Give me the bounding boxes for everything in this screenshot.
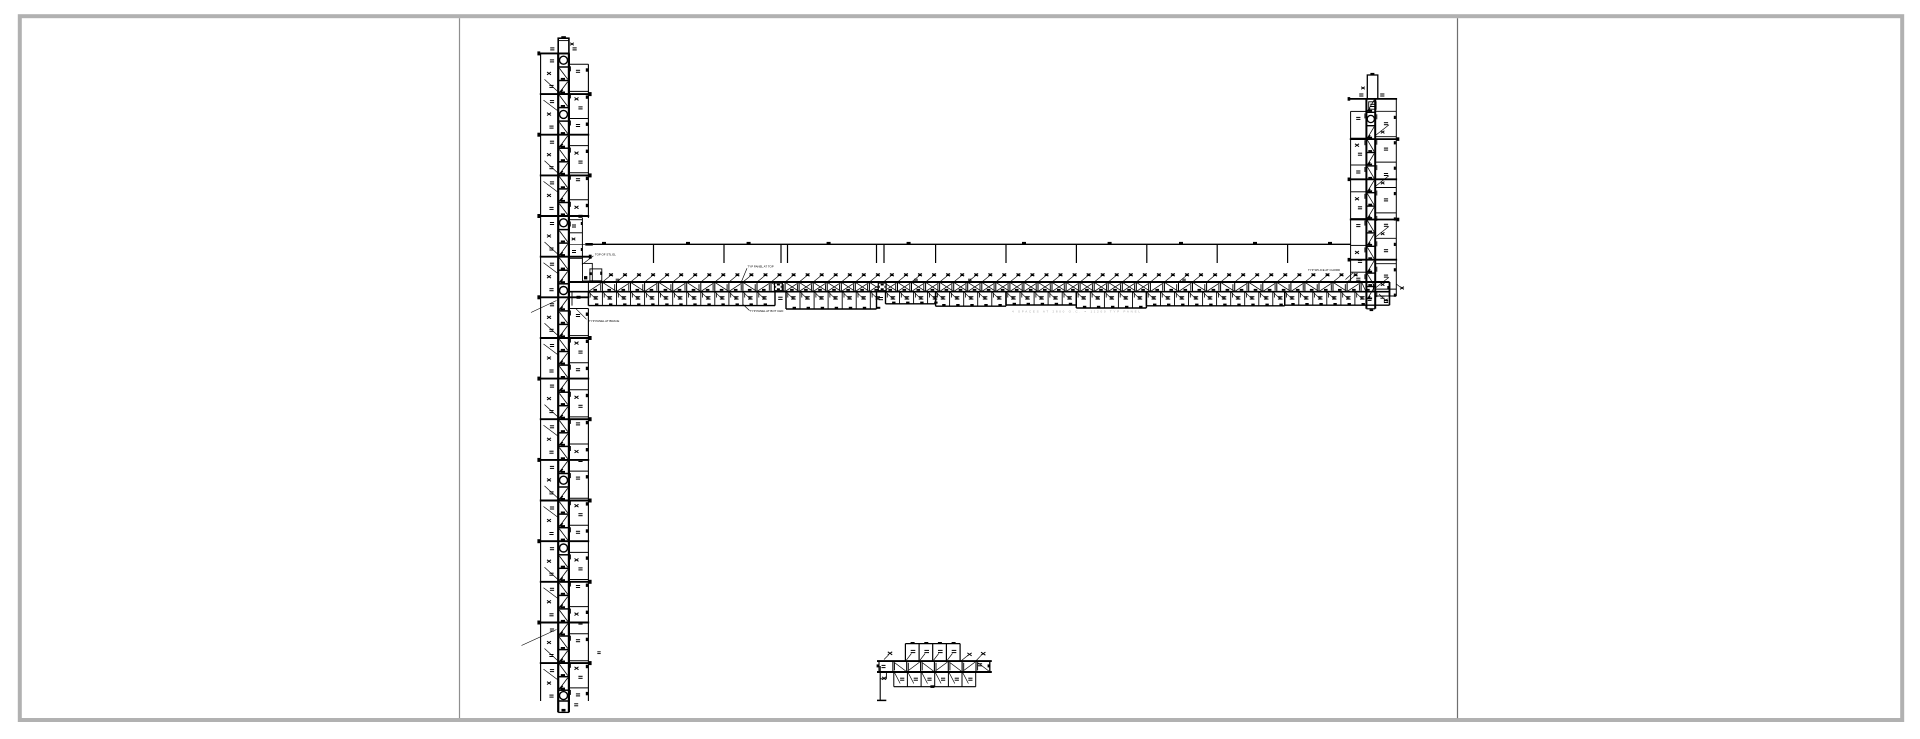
svg-text:TYP PANEL AT BRACE: TYP PANEL AT BRACE	[589, 319, 619, 323]
svg-text:4 SPACES AT 2800 O.C. = 11200: 4 SPACES AT 2800 O.C. = 11200 TYP PANEL	[1012, 310, 1140, 314]
svg-text:TYP PANEL AT TOP: TYP PANEL AT TOP	[748, 264, 774, 268]
svg-text:TOP OF STL EL: TOP OF STL EL	[595, 253, 616, 257]
svg-text:TYP PANEL AT BOT CHD: TYP PANEL AT BOT CHD	[750, 309, 783, 313]
svg-text:TYP SPLICE AT CHORD: TYP SPLICE AT CHORD	[1308, 268, 1340, 272]
